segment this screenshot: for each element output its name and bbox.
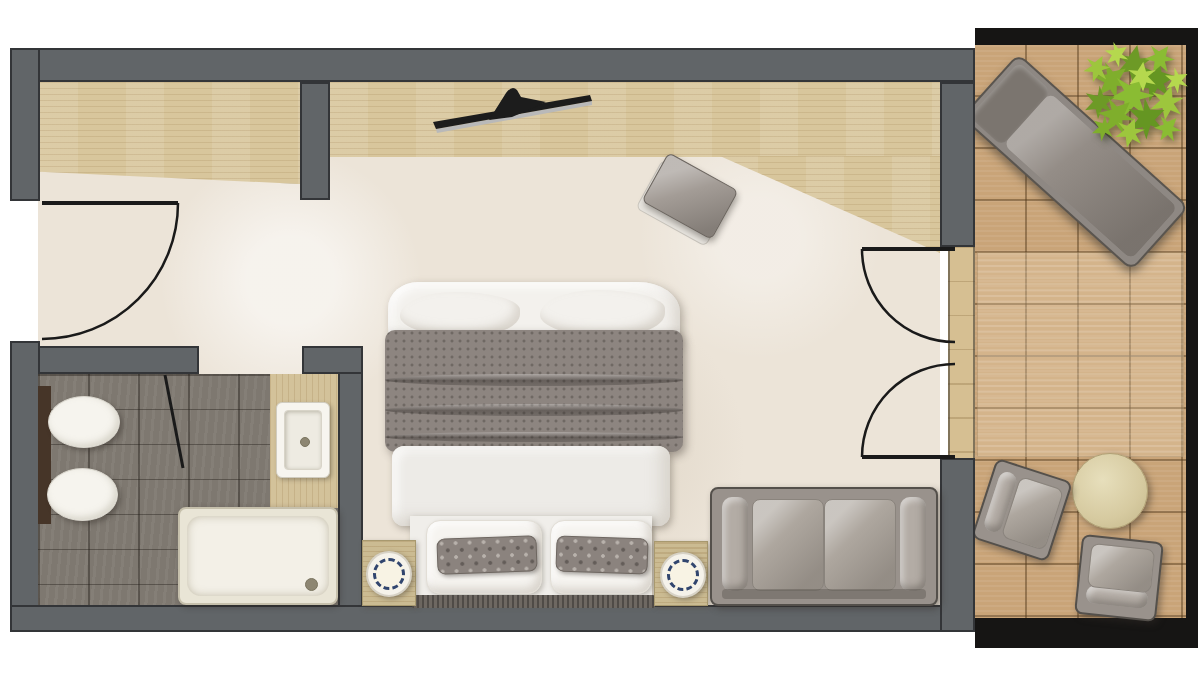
wall-right-lower [940,458,975,632]
pillow-gray-right [555,535,648,574]
balcony-rug [977,252,1184,457]
bathtub-drain [305,578,318,591]
lamp-ring [667,559,699,591]
round-side-table [1072,453,1148,529]
wall-left-upper [10,48,40,201]
lamp-left [366,551,412,597]
balcony-door-threshold [948,247,975,459]
wall-top [10,48,975,82]
sofa [710,487,938,606]
sofa-seat-left [752,499,824,591]
toilet [48,396,120,448]
wall-left-lower [10,341,40,632]
sofa-seat-right [824,499,896,591]
wall-bathroom-top-left [38,346,199,374]
sink [276,402,330,478]
wall-bathroom-right [338,372,363,607]
wardrobe-niche-floor [40,82,300,184]
blanket-fold [385,374,683,386]
armchair-lower [1074,534,1164,622]
blanket-fold [385,432,683,442]
bidet [47,468,118,521]
bathtub [178,507,338,605]
pillow-gray-left [436,535,537,574]
sink-drain [300,437,310,447]
lamp-right [660,552,706,598]
balcony-railing-bottom [975,618,1198,648]
potted-plant [1072,40,1190,148]
sofa-arm-left [722,497,748,591]
bed-headboard [412,595,655,608]
lamp-ring [373,558,405,590]
sofa-arm-right [900,497,926,591]
desk-strip-floor [330,82,940,157]
wall-right-upper [940,82,975,247]
floor-plan [0,0,1200,675]
blanket-fold [385,404,683,416]
wall-bottom [10,605,972,632]
sofa-back-shadow [722,589,926,599]
armchair-seat [1087,543,1155,593]
wall-bathroom-top-right [302,346,363,374]
bed-gray-blanket [385,330,683,452]
bed-sheet [392,446,670,526]
wall-wardrobe-divider [300,82,330,200]
